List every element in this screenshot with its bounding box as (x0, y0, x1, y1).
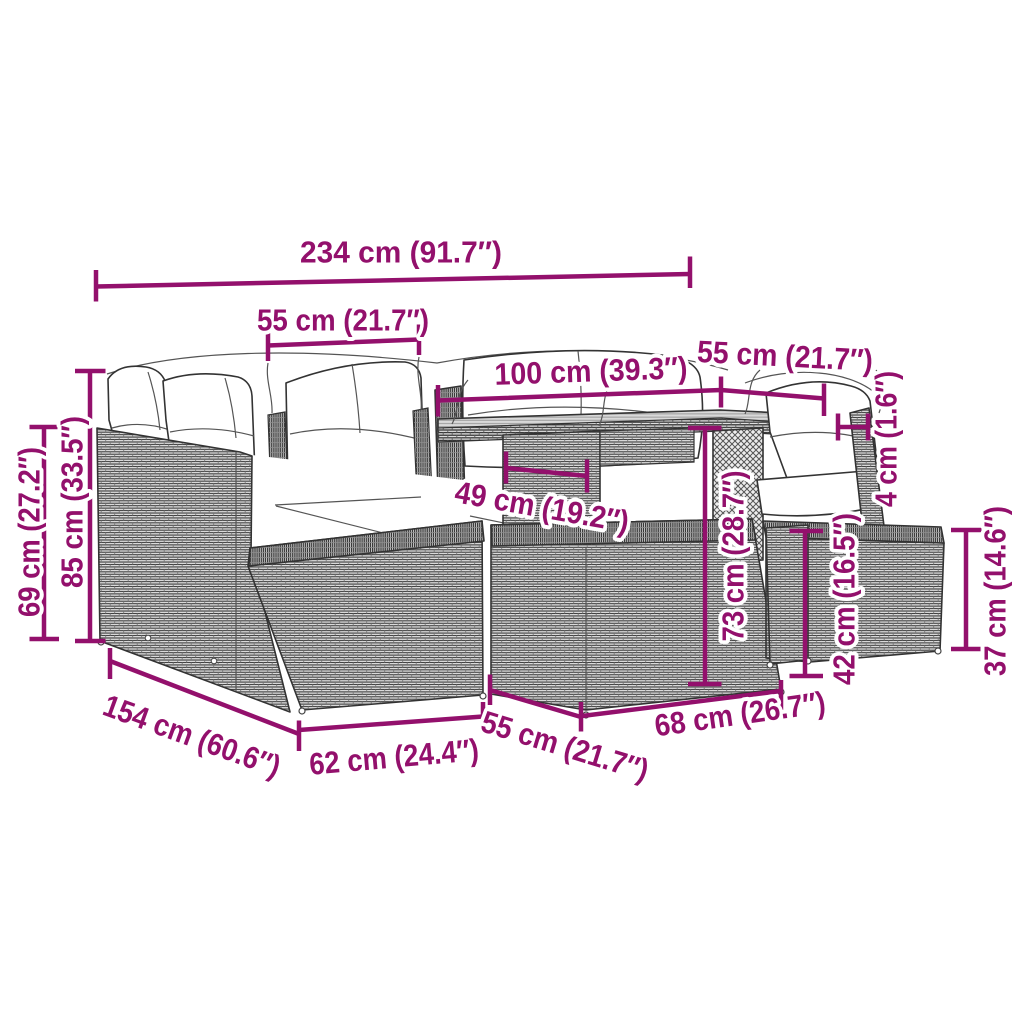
svg-text:100 cm (39.3″): 100 cm (39.3″) (494, 350, 688, 392)
svg-text:85 cm (33.5″): 85 cm (33.5″) (55, 416, 90, 588)
svg-text:69 cm (27.2″): 69 cm (27.2″) (12, 447, 47, 617)
svg-text:234 cm (91.7″): 234 cm (91.7″) (300, 235, 502, 270)
svg-text:73 cm (28.7″): 73 cm (28.7″) (716, 471, 751, 642)
svg-text:55 cm (21.7″): 55 cm (21.7″) (257, 303, 429, 338)
svg-text:4 cm (1.6″): 4 cm (1.6″) (869, 371, 904, 507)
svg-text:37 cm (14.6″): 37 cm (14.6″) (978, 506, 1013, 676)
svg-text:42 cm (16.5″): 42 cm (16.5″) (827, 513, 862, 685)
